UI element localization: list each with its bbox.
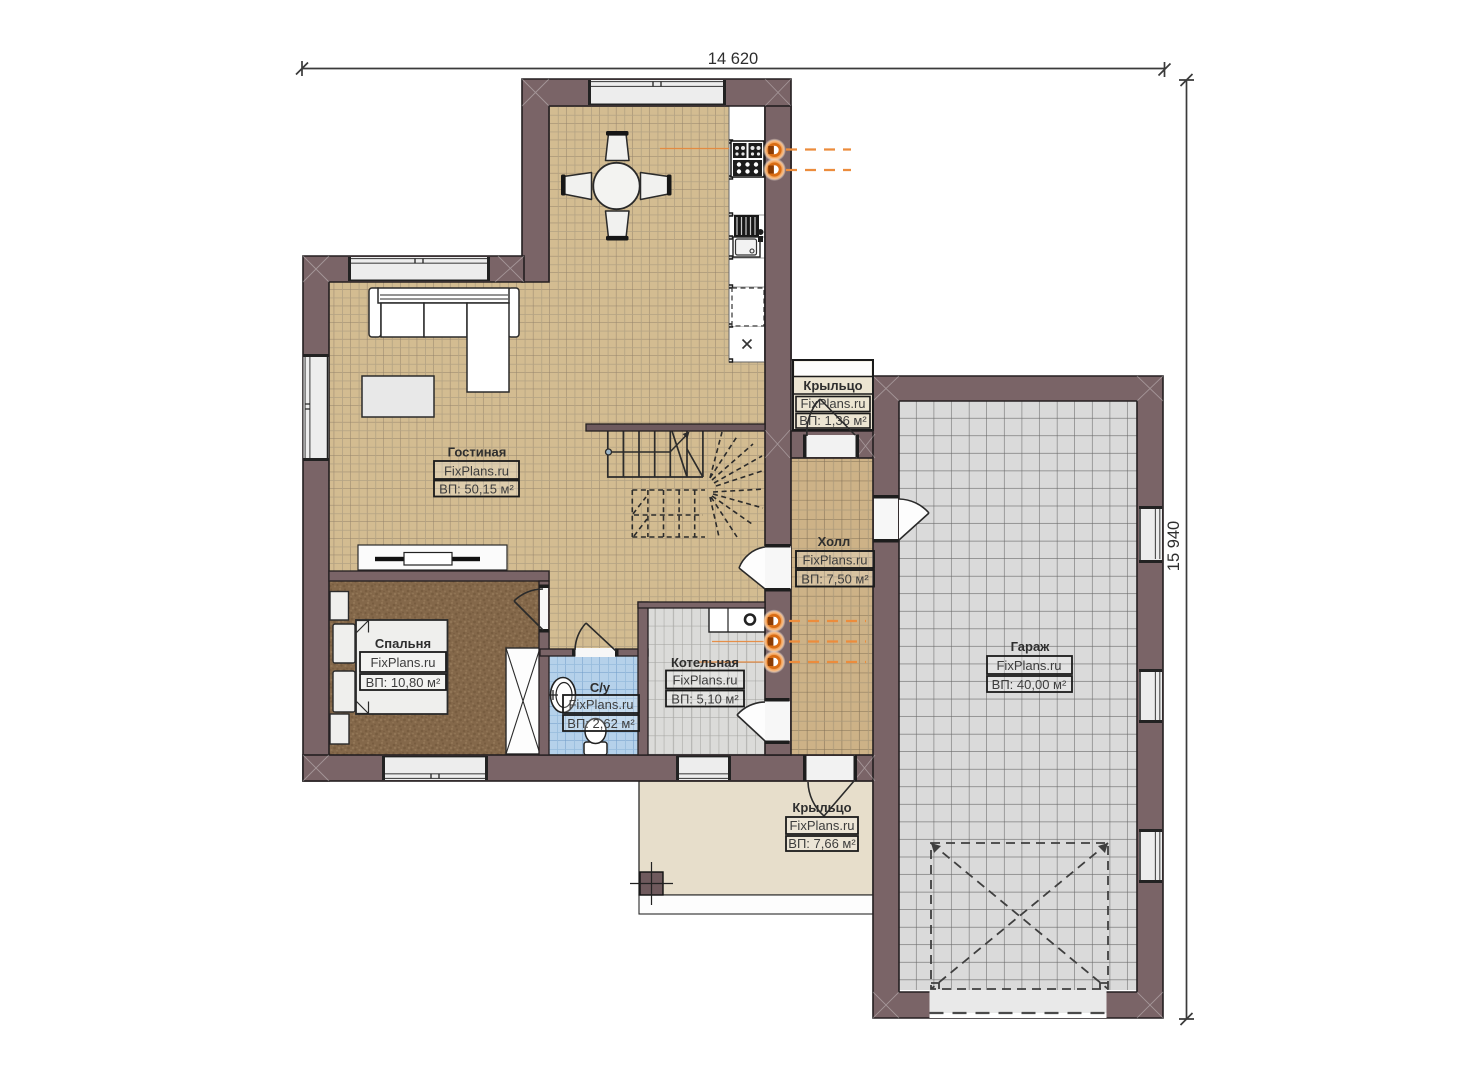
svg-text:FixPlans.ru: FixPlans.ru: [568, 697, 633, 712]
svg-text:FixPlans.ru: FixPlans.ru: [444, 464, 509, 479]
svg-text:Холл: Холл: [818, 534, 851, 549]
svg-text:ВП: 2,62 м²: ВП: 2,62 м²: [567, 716, 635, 731]
svg-text:14 620: 14 620: [708, 50, 758, 68]
svg-text:FixPlans.ru: FixPlans.ru: [996, 658, 1061, 673]
svg-text:FixPlans.ru: FixPlans.ru: [370, 655, 435, 670]
svg-text:Котельная: Котельная: [671, 655, 739, 670]
svg-text:Крыльцо: Крыльцо: [803, 378, 862, 393]
svg-text:ВП: 10,80 м²: ВП: 10,80 м²: [366, 675, 441, 690]
svg-text:Гараж: Гараж: [1011, 639, 1051, 654]
svg-text:ВП: 5,10 м²: ВП: 5,10 м²: [671, 692, 739, 707]
svg-text:Крыльцо: Крыльцо: [792, 800, 851, 815]
svg-text:15 940: 15 940: [1165, 521, 1183, 571]
svg-text:Спальня: Спальня: [375, 636, 431, 651]
svg-text:FixPlans.ru: FixPlans.ru: [789, 818, 854, 833]
svg-text:ВП: 50,15 м²: ВП: 50,15 м²: [439, 482, 514, 497]
svg-text:С/у: С/у: [590, 680, 611, 695]
svg-text:FixPlans.ru: FixPlans.ru: [672, 673, 737, 688]
svg-text:FixPlans.ru: FixPlans.ru: [800, 396, 865, 411]
svg-text:ВП: 7,50 м²: ВП: 7,50 м²: [801, 572, 869, 587]
svg-text:Гостиная: Гостиная: [448, 445, 507, 460]
svg-text:ВП: 7,66 м²: ВП: 7,66 м²: [788, 836, 856, 851]
svg-text:ВП: 40,00 м²: ВП: 40,00 м²: [992, 677, 1067, 692]
svg-text:FixPlans.ru: FixPlans.ru: [802, 553, 867, 568]
